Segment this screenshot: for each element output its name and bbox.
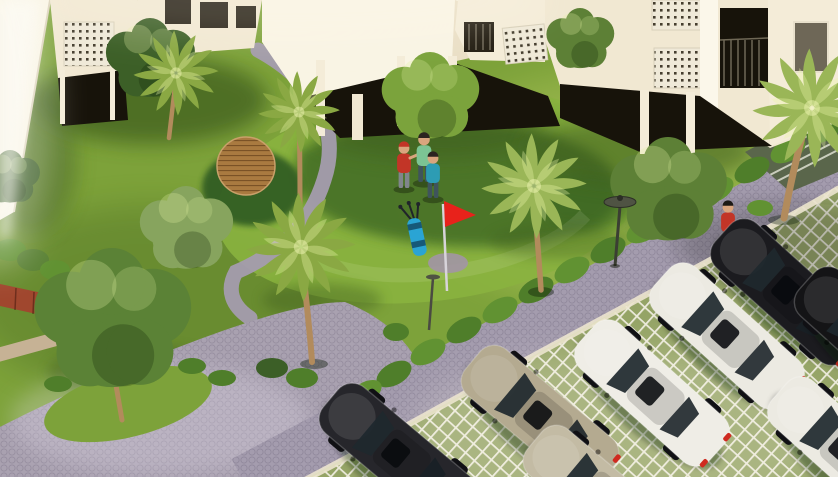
perforated-screen-1 — [64, 22, 114, 66]
deck-planks — [217, 137, 275, 195]
scene-canvas — [0, 0, 838, 477]
aerial-render-viewport — [0, 0, 838, 477]
perforated-screen-3 — [652, 0, 704, 30]
perforated-screen-4 — [654, 48, 702, 88]
balcony-right — [720, 8, 768, 88]
golf-hole-patch — [428, 253, 468, 273]
perforated-screen-2 — [502, 24, 548, 64]
undercroft-opening-1 — [58, 70, 128, 126]
